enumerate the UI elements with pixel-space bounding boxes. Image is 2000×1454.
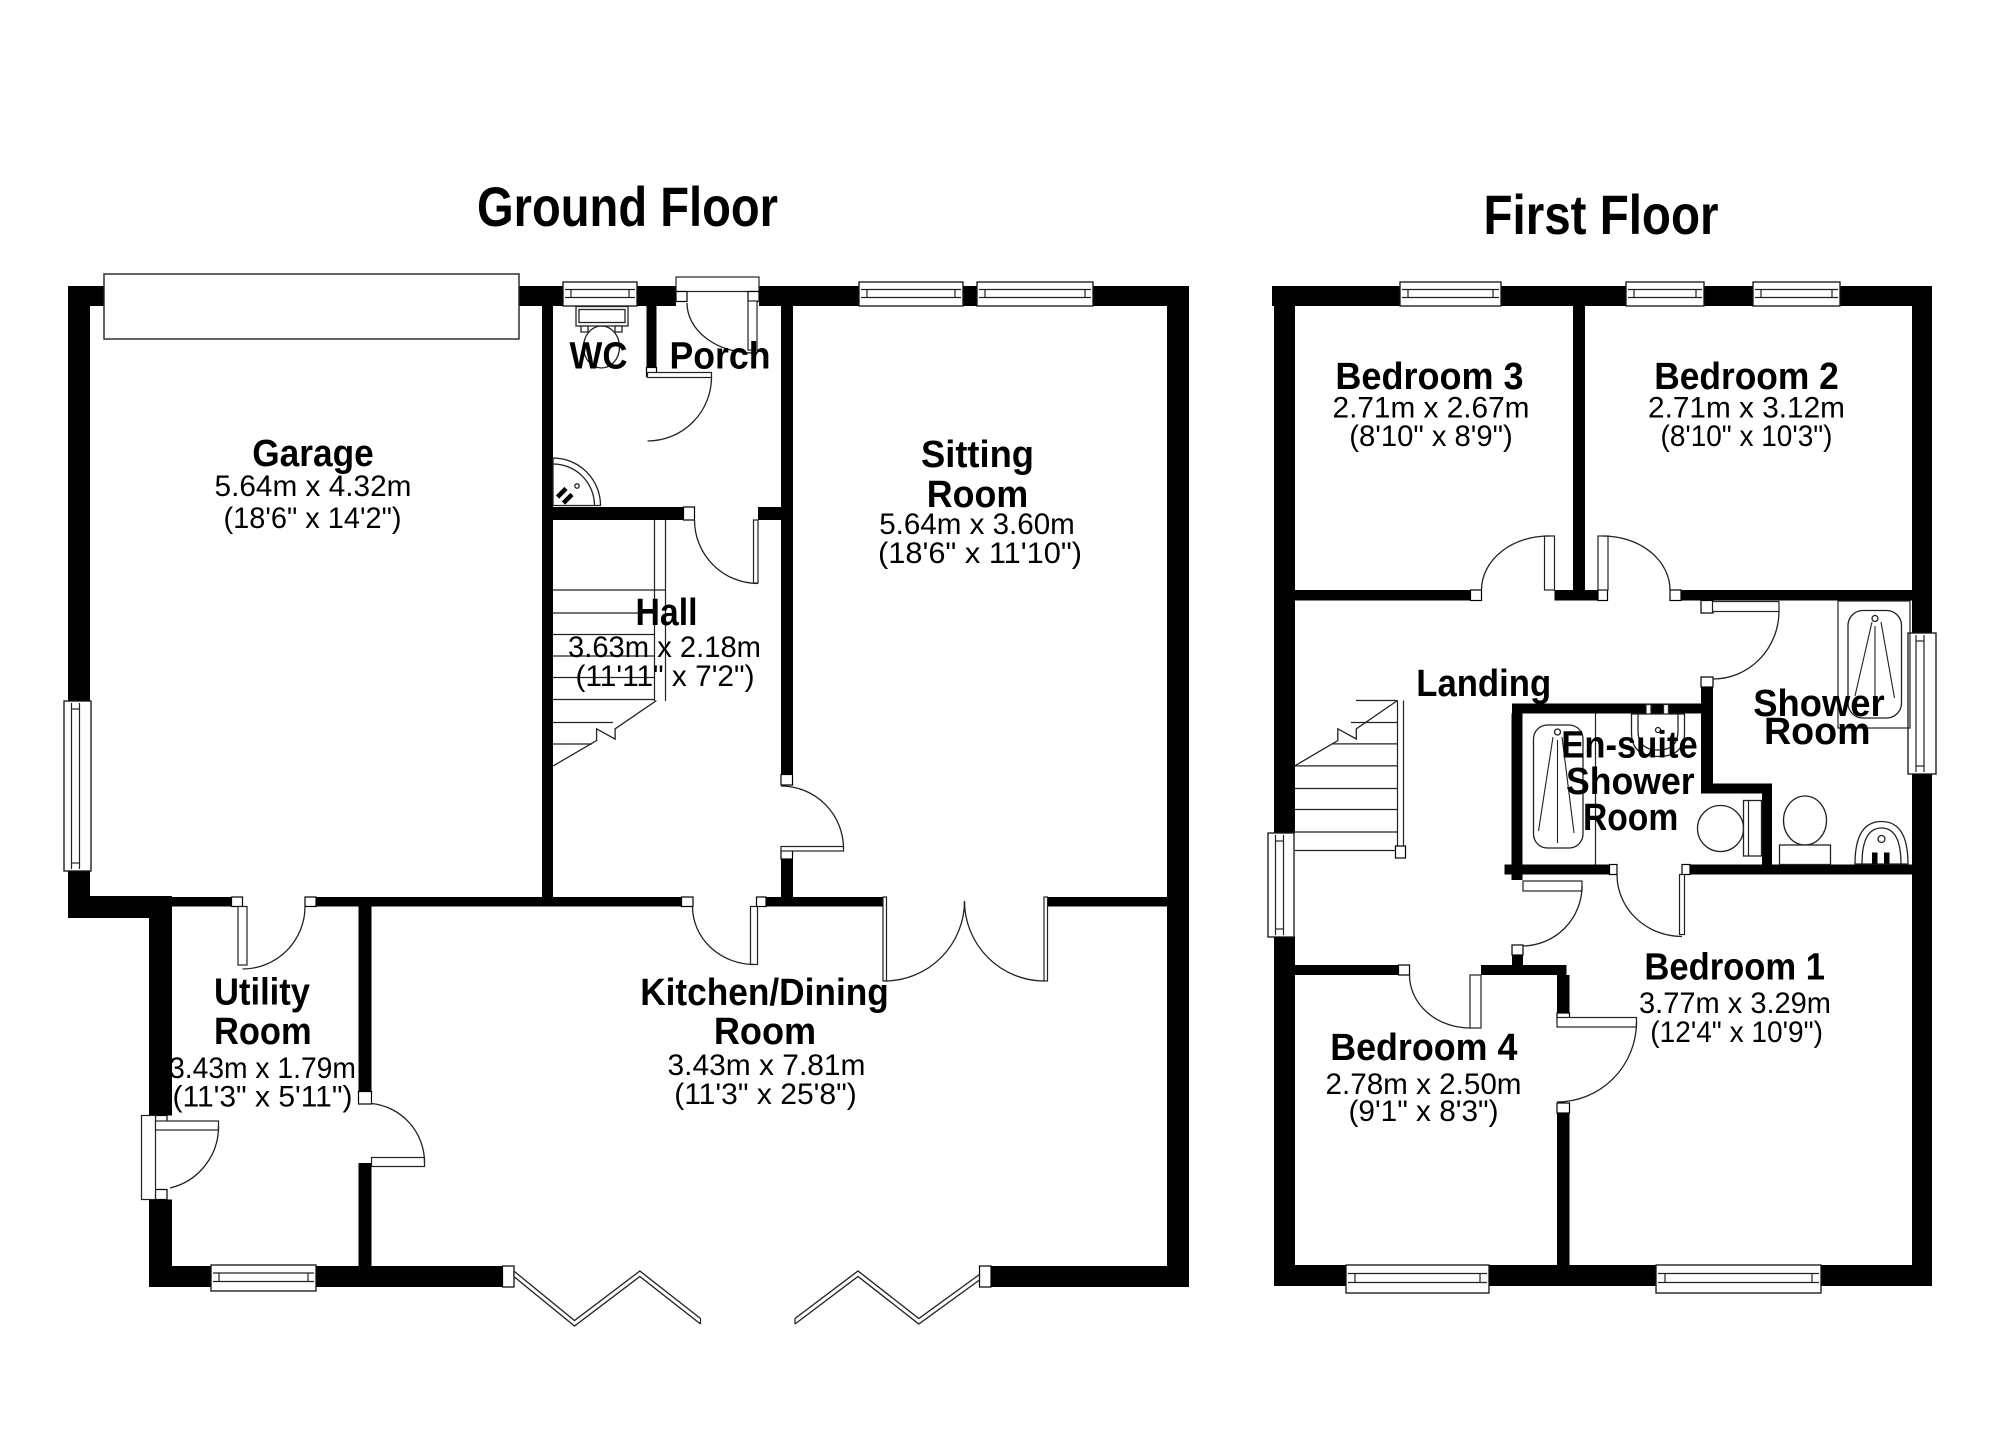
svg-text:(11'3" x 25'8"): (11'3" x 25'8"): [674, 1078, 857, 1111]
svg-text:(9'1" x 8'3"): (9'1" x 8'3"): [1349, 1095, 1499, 1128]
svg-text:Bedroom 1: Bedroom 1: [1644, 947, 1825, 989]
svg-text:(18'6" x 14'2"): (18'6" x 14'2"): [224, 502, 402, 535]
svg-text:Landing: Landing: [1416, 663, 1551, 705]
svg-text:Utility: Utility: [214, 972, 310, 1014]
svg-text:Room: Room: [714, 1011, 816, 1053]
svg-text:Hall: Hall: [636, 592, 698, 634]
svg-text:First Floor: First Floor: [1484, 183, 1719, 246]
svg-text:Room: Room: [1583, 797, 1678, 839]
svg-text:Kitchen/Dining: Kitchen/Dining: [640, 972, 889, 1014]
svg-text:WC: WC: [570, 336, 628, 378]
svg-text:Ground Floor: Ground Floor: [477, 175, 778, 238]
svg-text:Porch: Porch: [670, 336, 771, 378]
svg-text:(11'3" x 5'11"): (11'3" x 5'11"): [173, 1081, 353, 1114]
svg-text:Sitting: Sitting: [921, 434, 1034, 476]
svg-text:(8'10" x 8'9"): (8'10" x 8'9"): [1349, 420, 1513, 453]
svg-text:(8'10" x 10'3"): (8'10" x 10'3"): [1661, 420, 1833, 453]
svg-text:Garage: Garage: [252, 433, 374, 475]
svg-text:Room: Room: [214, 1011, 312, 1053]
svg-text:Room: Room: [1764, 711, 1871, 753]
svg-text:(18'6" x 11'10"): (18'6" x 11'10"): [878, 537, 1082, 570]
svg-text:(11'11" x 7'2"): (11'11" x 7'2"): [576, 660, 755, 693]
svg-text:5.64m x 4.32m: 5.64m x 4.32m: [215, 470, 412, 503]
svg-text:(12'4" x 10'9"): (12'4" x 10'9"): [1650, 1016, 1823, 1049]
svg-text:Bedroom 4: Bedroom 4: [1330, 1027, 1517, 1069]
